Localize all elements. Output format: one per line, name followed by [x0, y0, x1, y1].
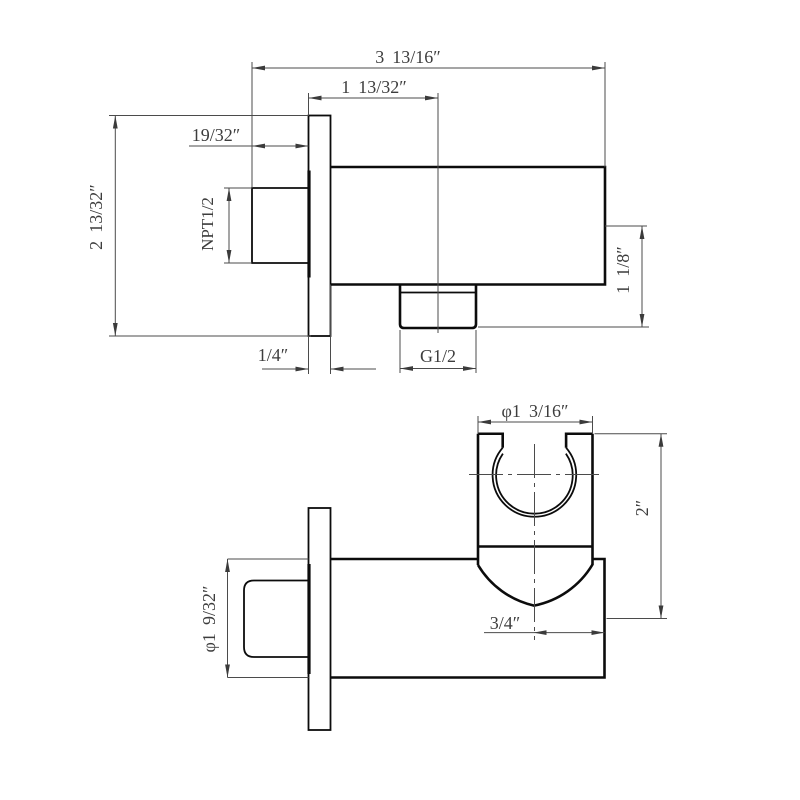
svg-text:3/4″: 3/4″	[490, 613, 521, 633]
svg-text:3 13/16″: 3 13/16″	[375, 47, 441, 67]
svg-text:φ1 3/16″: φ1 3/16″	[502, 401, 569, 421]
svg-text:G1/2: G1/2	[420, 346, 456, 366]
svg-text:19/32″: 19/32″	[192, 125, 241, 145]
svg-text:2″: 2″	[632, 500, 652, 517]
svg-text:1 13/32″: 1 13/32″	[341, 77, 407, 97]
svg-text:2 13/32″: 2 13/32″	[86, 184, 106, 250]
svg-text:1/4″: 1/4″	[258, 345, 289, 365]
svg-text:1 1/8″: 1 1/8″	[613, 246, 633, 294]
svg-text:φ1 9/32″: φ1 9/32″	[199, 586, 219, 653]
svg-text:NPT1/2: NPT1/2	[198, 197, 217, 251]
